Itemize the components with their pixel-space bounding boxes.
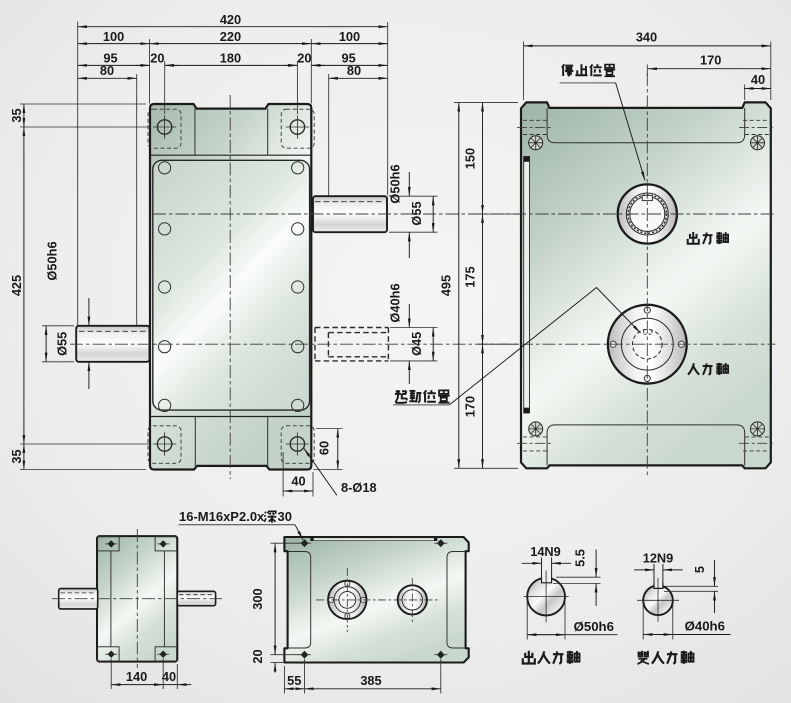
svg-text:55: 55: [287, 673, 301, 688]
svg-text:100: 100: [339, 29, 360, 44]
svg-text:170: 170: [700, 52, 721, 67]
svg-text:40: 40: [291, 474, 305, 489]
svg-text:385: 385: [360, 673, 381, 688]
svg-text:340: 340: [636, 30, 657, 45]
svg-text:20: 20: [250, 649, 265, 663]
svg-text:180: 180: [220, 50, 241, 65]
svg-text:Ø50h6: Ø50h6: [574, 619, 614, 634]
svg-text:8-Ø18: 8-Ø18: [341, 480, 377, 495]
svg-text:420: 420: [220, 12, 241, 27]
svg-text:100: 100: [103, 29, 124, 44]
svg-text:495: 495: [439, 275, 454, 296]
svg-text:14N9: 14N9: [530, 544, 561, 559]
svg-text:150: 150: [462, 148, 477, 169]
svg-text:220: 220: [220, 29, 241, 44]
svg-text:170: 170: [462, 396, 477, 417]
svg-text:12N9: 12N9: [643, 551, 674, 566]
svg-text:35: 35: [9, 449, 24, 463]
svg-text:35: 35: [9, 108, 24, 122]
svg-text:425: 425: [9, 275, 24, 296]
svg-text:175: 175: [462, 266, 477, 287]
svg-text:140: 140: [126, 669, 147, 684]
svg-text:Ø50h6: Ø50h6: [45, 241, 60, 280]
svg-text:80: 80: [347, 63, 361, 78]
svg-text:5: 5: [692, 566, 707, 573]
svg-text:Ø55: Ø55: [409, 201, 424, 225]
svg-text:20: 20: [297, 50, 311, 65]
svg-text:Ø40h6: Ø40h6: [388, 283, 403, 322]
svg-text:Ø50h6: Ø50h6: [388, 164, 403, 203]
svg-text:20: 20: [150, 50, 164, 65]
svg-text:5.5: 5.5: [573, 549, 588, 567]
svg-text:30: 30: [278, 509, 292, 524]
svg-text:300: 300: [250, 588, 265, 609]
svg-text:40: 40: [751, 72, 765, 87]
svg-text:Ø40h6: Ø40h6: [685, 619, 725, 634]
svg-text:16-M16xP2.0x: 16-M16xP2.0x: [179, 509, 265, 524]
svg-text:80: 80: [100, 63, 114, 78]
svg-text:60: 60: [317, 441, 332, 455]
svg-text:40: 40: [162, 669, 176, 684]
svg-text:Ø55: Ø55: [55, 332, 70, 356]
